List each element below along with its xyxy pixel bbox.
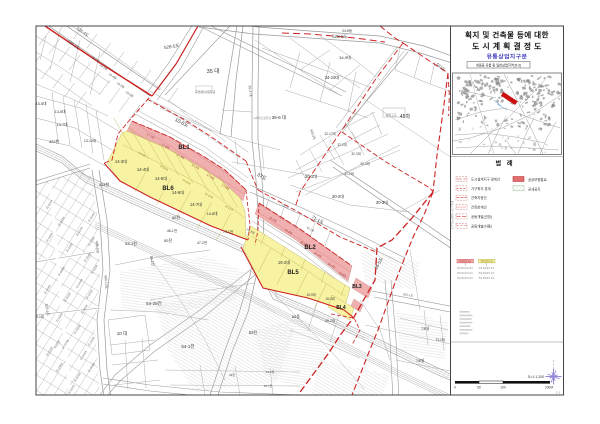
svg-text:30-3대: 30-3대 (376, 199, 388, 206)
svg-text:414천: 414천 (99, 181, 110, 187)
svg-text:14-6대: 14-6대 (172, 189, 184, 196)
svg-text:9-1대: 9-1대 (36, 314, 44, 319)
svg-text:44전: 44전 (229, 372, 235, 377)
svg-text:15-9대: 15-9대 (306, 292, 315, 297)
svg-text:54-29전: 54-29전 (146, 300, 162, 306)
svg-text:35-6 대: 35-6 대 (272, 114, 286, 121)
svg-text:65동: 65동 (292, 314, 300, 319)
svg-text:전라남도광양지구도시설계: 전라남도광양지구도시설계 (450, 200, 454, 229)
svg-text:46-1전: 46-1전 (167, 228, 177, 233)
svg-text:49-2대: 49-2대 (325, 318, 335, 323)
svg-text:35-4 대: 35-4 대 (248, 85, 254, 97)
svg-text:42전: 42전 (172, 214, 180, 220)
svg-text:15-3대: 15-3대 (325, 296, 334, 301)
svg-text:53-1전: 53-1전 (125, 240, 137, 246)
svg-text:32-4대: 32-4대 (360, 161, 369, 166)
svg-text:공개공지: 공개공지 (528, 186, 540, 191)
svg-text:14-7대: 14-7대 (190, 201, 202, 208)
svg-text:BL3: BL3 (352, 284, 362, 290)
svg-text:200M: 200M (545, 386, 553, 390)
svg-text:63전: 63전 (249, 329, 258, 335)
svg-text:34-9대: 34-9대 (339, 54, 351, 60)
svg-text:14-3대: 14-3대 (115, 158, 127, 165)
svg-text:BL1: BL1 (178, 145, 190, 151)
svg-text:가구획지 경계: 가구획지 경계 (471, 186, 491, 191)
svg-text:528-5도: 528-5도 (332, 34, 348, 40)
svg-text:S=1:1,200: S=1:1,200 (528, 375, 545, 379)
svg-text:시외버스정류장: 시외버스정류장 (253, 116, 271, 120)
svg-text:건축한계선: 건축한계선 (471, 205, 487, 210)
svg-text:32-17대: 32-17대 (324, 131, 335, 136)
svg-text:범 례: 범 례 (495, 160, 514, 168)
svg-text:100: 100 (500, 386, 506, 390)
svg-text:광양고교: 광양고교 (385, 112, 396, 117)
svg-text:73대: 73대 (421, 325, 429, 331)
svg-text:50: 50 (477, 386, 481, 390)
svg-text:BL4: BL4 (336, 305, 346, 311)
svg-text:34-8동: 34-8동 (342, 29, 353, 33)
svg-text:15-2대: 15-2대 (278, 259, 290, 266)
svg-text:422천: 422천 (49, 138, 60, 144)
svg-text:14-4대: 14-4대 (137, 166, 149, 173)
svg-text:32-3대: 32-3대 (351, 151, 360, 156)
svg-text:34-10대: 34-10대 (325, 74, 340, 81)
svg-text:10 대: 10 대 (117, 330, 127, 337)
svg-text:35 대: 35 대 (207, 67, 220, 75)
svg-text:공공보행통로: 공공보행통로 (528, 177, 547, 182)
svg-text:13-10대: 13-10대 (84, 138, 96, 143)
svg-text:공동개발(허용): 공동개발(허용) (471, 223, 492, 228)
svg-text:도시설계지구 경계선: 도시설계지구 경계선 (471, 177, 500, 182)
svg-text:50전: 50전 (164, 237, 172, 243)
svg-text:최동등 유통 및 일반상업지역 [9-2]: 최동등 유통 및 일반상업지역 [9-2] (476, 62, 521, 67)
svg-text:73-1대: 73-1대 (435, 337, 444, 342)
svg-text:0: 0 (454, 386, 456, 390)
svg-text:13-6대: 13-6대 (54, 109, 66, 114)
svg-text:45학: 45학 (400, 113, 411, 120)
svg-text:70-1전: 70-1전 (223, 229, 233, 234)
svg-text:54-1전: 54-1전 (181, 343, 194, 349)
svg-text:74대: 74대 (416, 357, 424, 363)
svg-text:유통상업지구문: 유통상업지구문 (487, 53, 528, 61)
svg-text:획지 및 건축물 등에 대한: 획지 및 건축물 등에 대한 (465, 30, 549, 40)
svg-text:13-7대: 13-7대 (56, 122, 68, 127)
svg-text:공동개발(권장): 공동개발(권장) (471, 214, 492, 219)
svg-text:30-2대: 30-2대 (332, 193, 344, 200)
svg-text:건축지정선: 건축지정선 (471, 195, 487, 200)
svg-text:43-2전: 43-2전 (266, 369, 275, 374)
svg-text:BL5: BL5 (287, 270, 299, 276)
svg-text:14-5대: 14-5대 (155, 175, 167, 182)
svg-text:도-1: 도-1 (556, 391, 561, 395)
svg-text:고속버스터미널: 고속버스터미널 (195, 89, 216, 94)
svg-text:32-2대: 32-2대 (337, 142, 346, 147)
svg-text:도 시 계 획 결 정 도: 도 시 계 획 결 정 도 (472, 41, 542, 51)
svg-text:31-1대: 31-1대 (344, 171, 353, 176)
svg-text:47-2전: 47-2전 (197, 240, 207, 245)
svg-text:30-1대: 30-1대 (305, 173, 317, 180)
svg-text:13-5대: 13-5대 (35, 101, 47, 106)
svg-text:45-7전: 45-7전 (264, 383, 273, 388)
svg-text:14-8대: 14-8대 (206, 211, 218, 216)
